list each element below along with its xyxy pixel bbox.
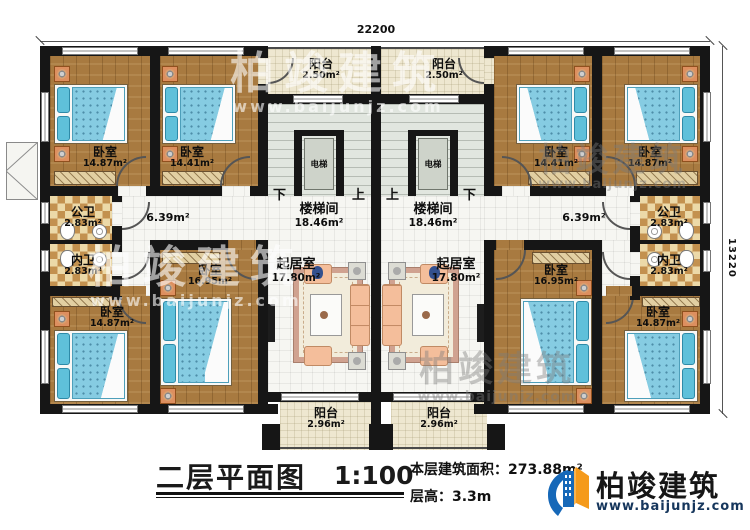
room-label-bedroom: 卧室 16.95m² — [526, 264, 586, 288]
room-label-bath: 公卫 2.83m² — [639, 206, 699, 230]
room-label-living: 起居室 17.80m² — [421, 258, 491, 284]
window — [614, 47, 690, 55]
elevator-shaft-wall — [294, 130, 344, 136]
elevator-label: 电梯 — [304, 158, 334, 170]
door-opening — [228, 240, 256, 250]
nightstand — [682, 66, 698, 82]
door-opening — [112, 252, 122, 276]
bed — [54, 84, 128, 144]
door-opening — [120, 286, 146, 296]
bed — [624, 84, 698, 144]
room-label-bath: 公卫 2.83m² — [53, 206, 113, 230]
bed-pillows — [682, 87, 695, 141]
room-label-hall: 6.39m² — [552, 212, 616, 224]
end-table — [348, 352, 366, 370]
door-opening — [222, 186, 250, 196]
room-label-balcony: 阳台 2.50m² — [414, 58, 474, 82]
door-opening — [118, 186, 146, 196]
dimension-tick — [718, 41, 727, 50]
bed-mattress — [180, 87, 233, 141]
brand-website: www.baijunjz.com — [596, 499, 745, 514]
window — [41, 202, 49, 224]
dimension-tick — [718, 409, 727, 418]
armchair — [420, 346, 448, 366]
balcony-pillar — [487, 424, 505, 450]
bed-mattress — [519, 87, 572, 141]
bed — [160, 298, 232, 386]
sliding-door — [393, 393, 471, 401]
window — [41, 92, 49, 142]
canopy — [6, 142, 38, 200]
bed-mattress — [72, 87, 125, 141]
wardrobe — [636, 171, 698, 185]
bed-mattress — [627, 333, 680, 399]
window — [168, 405, 244, 413]
nightstand — [160, 280, 176, 296]
nightstand — [54, 311, 70, 327]
bed-pillows — [57, 333, 70, 399]
room-label-bedroom: 卧室 16.95m² — [180, 264, 240, 288]
bed — [624, 330, 698, 402]
room-label-bath: 内卫 2.83m² — [53, 254, 113, 278]
bed-mattress — [627, 87, 680, 141]
window — [41, 330, 49, 384]
wardrobe — [162, 171, 224, 185]
window — [168, 47, 244, 55]
coffee-table — [310, 294, 342, 336]
window — [409, 95, 459, 103]
title-underline — [156, 492, 404, 495]
stair-up-label: 上 — [352, 184, 365, 203]
room-label-stairwell: 楼梯间 18.46m² — [284, 203, 354, 229]
balcony-railing — [268, 47, 371, 49]
elevator-shaft-wall — [336, 130, 344, 196]
bed — [54, 330, 128, 402]
sliding-door — [281, 393, 359, 401]
window — [508, 47, 584, 55]
end-table — [348, 262, 366, 280]
door-opening — [258, 58, 268, 84]
window — [62, 405, 138, 413]
wall-segment — [630, 286, 702, 296]
bed — [162, 84, 236, 144]
window — [703, 202, 711, 224]
elevator-shaft-wall — [408, 130, 416, 196]
stair-down-label: 下 — [463, 184, 476, 203]
bed-mattress — [523, 301, 574, 383]
tv — [477, 304, 484, 342]
room-label-bedroom: 卧室 14.87m² — [628, 306, 688, 330]
wall-segment-center — [371, 46, 381, 424]
title-underline — [156, 497, 404, 498]
door-opening — [112, 202, 122, 226]
balcony-pillar — [262, 424, 280, 450]
floorplan-page: 22200 13220 — [0, 0, 750, 530]
room-label-balcony: 阳台 2.50m² — [291, 58, 351, 82]
door-opening — [606, 286, 632, 296]
stair-up-label: 上 — [386, 184, 399, 203]
bed-mattress — [178, 301, 229, 383]
wall-segment — [150, 250, 160, 414]
window — [508, 405, 584, 413]
room-label-bedroom: 卧室 14.41m² — [162, 146, 222, 170]
room-label-bedroom: 卧室 14.87m² — [82, 306, 142, 330]
elevator-shaft-wall — [294, 130, 302, 196]
dimension-top-value: 22200 — [346, 23, 406, 36]
wall-segment — [150, 56, 160, 186]
elevator-label: 电梯 — [418, 158, 448, 170]
bed-pillows — [163, 301, 176, 383]
door-opening — [484, 58, 494, 84]
wall-segment — [50, 240, 112, 244]
room-label-bedroom: 卧室 14.87m² — [75, 146, 135, 170]
room-label-living: 起居室 17.80m² — [261, 258, 331, 284]
bed-mattress — [72, 333, 125, 399]
balcony-pillar — [369, 424, 393, 450]
room-label-balcony: 阳台 2.96m² — [296, 407, 356, 431]
floor-height-label: 层高： — [410, 489, 452, 505]
window — [703, 250, 711, 272]
plan-title: 二层平面图 — [156, 456, 306, 496]
nightstand — [574, 66, 590, 82]
floor-area-label: 本层建筑面积： — [410, 462, 508, 478]
plan-scale: 1:100 — [334, 461, 414, 490]
balcony-railing — [391, 447, 487, 449]
nightstand — [160, 388, 176, 404]
room-label-stairwell: 楼梯间 18.46m² — [398, 203, 468, 229]
nightstand — [682, 146, 698, 162]
window — [41, 250, 49, 272]
bed-pillows — [574, 87, 587, 141]
door-opening — [502, 186, 530, 196]
tv — [268, 304, 275, 342]
dimension-line-right — [722, 46, 723, 414]
nightstand — [576, 388, 592, 404]
balcony-railing — [381, 47, 484, 49]
wall-segment — [640, 240, 702, 244]
bed — [520, 298, 592, 386]
nightstand — [54, 146, 70, 162]
room-label-bedroom: 卧室 14.87m² — [620, 146, 680, 170]
end-table — [388, 262, 406, 280]
wall-segment — [592, 250, 602, 414]
elevator-shaft-wall — [408, 130, 458, 136]
wardrobe — [528, 171, 590, 185]
bed-pillows — [165, 87, 178, 141]
sofa — [382, 284, 402, 346]
window — [62, 47, 138, 55]
nightstand — [54, 66, 70, 82]
end-table — [388, 352, 406, 370]
brand-logo-icon — [543, 463, 591, 521]
bed — [516, 84, 590, 144]
door-opening — [496, 240, 524, 250]
window — [614, 405, 690, 413]
wall-segment — [592, 56, 602, 186]
floor-height-row: 层高：3.3m — [410, 486, 491, 506]
door-opening — [606, 186, 634, 196]
nightstand — [162, 66, 178, 82]
armchair — [304, 346, 332, 366]
wardrobe — [54, 171, 116, 185]
dimension-line-top — [40, 41, 710, 42]
bed-pillows — [682, 333, 695, 399]
window — [293, 95, 343, 103]
room-label-bedroom: 卧室 14.41m² — [526, 146, 586, 170]
bed-pillows — [576, 301, 589, 383]
window — [703, 330, 711, 384]
floor-height-value: 3.3m — [452, 489, 491, 505]
dimension-right-value: 13220 — [726, 238, 737, 278]
bed-pillows — [57, 87, 70, 141]
balcony-railing — [280, 447, 373, 449]
room-label-bath: 内卫 2.83m² — [639, 254, 699, 278]
room-label-balcony: 阳台 2.96m² — [409, 407, 469, 431]
window — [703, 92, 711, 142]
elevator-shaft-wall — [450, 130, 458, 196]
coffee-table — [412, 294, 444, 336]
room-label-hall: 6.39m² — [136, 212, 200, 224]
wall-segment — [50, 286, 122, 296]
sofa — [350, 284, 370, 346]
stair-down-label: 下 — [273, 184, 286, 203]
